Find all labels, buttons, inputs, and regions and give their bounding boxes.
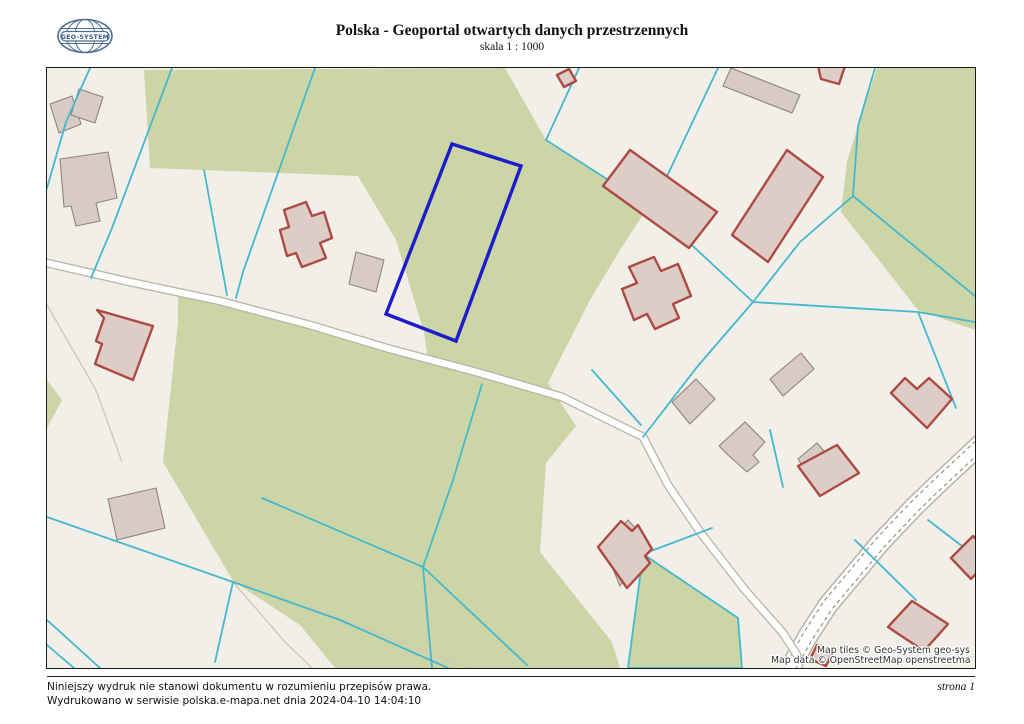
parcel-line (215, 582, 233, 662)
registry-building (951, 536, 975, 579)
attribution-osm: Map data © OpenStreetMap openstreetma (771, 655, 971, 666)
scale-label: skala 1 : 1000 (0, 41, 1024, 53)
parcel-line (47, 645, 74, 668)
registry-building (622, 257, 691, 329)
page-root: { "header": { "title": "Polska - Geoport… (0, 0, 1024, 724)
parcel-line (770, 430, 783, 487)
footer-rule (47, 676, 975, 677)
registry-building (891, 378, 952, 428)
building (108, 488, 165, 540)
green-area-west-sliver (47, 380, 62, 428)
page-title: Polska - Geoportal otwartych danych prze… (0, 22, 1024, 40)
registry-building (888, 601, 948, 651)
building (60, 152, 117, 226)
parcel-line (753, 302, 918, 312)
registry-building (732, 150, 823, 262)
registry-building (557, 69, 576, 87)
print-info-text: Wydrukowano w serwisie polska.e-mapa.net… (47, 695, 421, 707)
registry-building (818, 68, 845, 84)
map-canvas[interactable]: Map tiles © Geo-System geo-sys Map data … (46, 67, 976, 669)
disclaimer-text: Niniejszy wydruk nie stanowi dokumentu w… (47, 681, 431, 693)
registry-building (95, 310, 153, 380)
page-number: strona 1 (937, 681, 975, 693)
parcel-line (47, 620, 100, 668)
building (672, 379, 715, 424)
green-areas (47, 68, 975, 668)
building (719, 422, 765, 472)
building (723, 68, 800, 113)
green-area-northeast (841, 68, 975, 330)
building (770, 353, 814, 396)
